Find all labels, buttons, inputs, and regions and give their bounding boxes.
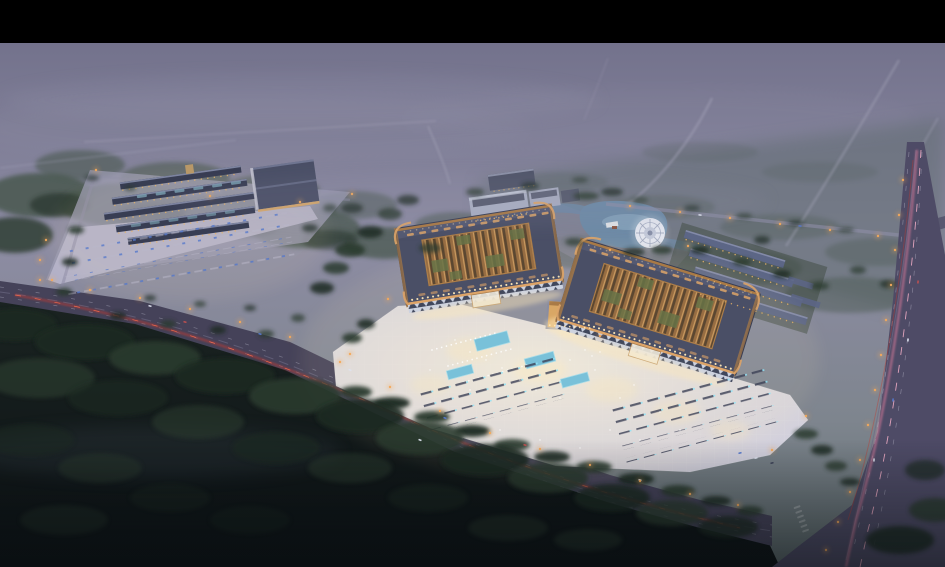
tree-canopy xyxy=(144,295,156,301)
street-light xyxy=(779,223,781,225)
fog-wisp xyxy=(170,172,770,228)
street-light xyxy=(599,335,601,337)
street-light xyxy=(687,245,689,247)
tree-canopy xyxy=(623,248,645,256)
street-light xyxy=(339,361,341,363)
tree-canopy xyxy=(85,175,99,181)
tree-canopy xyxy=(357,226,383,238)
car xyxy=(917,280,919,283)
pedestrian-dot xyxy=(454,339,455,340)
pedestrian-dot xyxy=(569,359,570,360)
tree-canopy xyxy=(244,305,256,311)
tree-canopy xyxy=(160,320,176,328)
tree-canopy xyxy=(310,282,334,294)
fog-wisp xyxy=(0,74,600,126)
tree-canopy xyxy=(210,326,226,334)
tree-canopy xyxy=(342,333,362,343)
street-light xyxy=(439,410,441,412)
pedestrian-dot xyxy=(429,369,430,370)
tree-canopy xyxy=(811,282,829,290)
tree-canopy xyxy=(736,213,752,219)
fountain-hub xyxy=(648,231,653,236)
street-light xyxy=(729,217,731,219)
street-light xyxy=(139,297,141,299)
pedestrian-dot xyxy=(609,429,610,430)
street-light xyxy=(489,432,491,434)
street-light xyxy=(189,308,191,310)
pedestrian-dot xyxy=(469,389,470,390)
tree-canopy xyxy=(194,301,206,307)
tree-canopy xyxy=(850,266,866,274)
pedestrian-dot xyxy=(485,359,486,360)
rendering-canvas xyxy=(0,0,945,567)
street-light xyxy=(805,415,807,417)
tree-canopy xyxy=(152,405,244,439)
car xyxy=(892,398,894,401)
tree-canopy xyxy=(838,227,854,233)
street-light xyxy=(89,289,91,291)
tree-canopy xyxy=(357,319,375,329)
pedestrian-dot xyxy=(535,389,536,390)
tree-canopy xyxy=(773,270,791,278)
tree-canopy xyxy=(68,226,84,234)
tree-canopy xyxy=(62,258,78,266)
street-light xyxy=(289,336,291,338)
street-light xyxy=(890,284,892,286)
pedestrian-dot xyxy=(633,384,634,385)
tree-canopy xyxy=(110,312,126,320)
letterbox-bar xyxy=(0,0,945,43)
street-light xyxy=(877,235,879,237)
street-light xyxy=(239,321,241,323)
pedestrian-dot xyxy=(519,379,520,380)
car xyxy=(798,225,801,227)
tree-canopy xyxy=(691,246,709,254)
street-light xyxy=(95,169,97,171)
tree-canopy xyxy=(68,380,168,416)
tree-canopy xyxy=(651,246,673,254)
street-light xyxy=(51,279,53,281)
pedestrian-dot xyxy=(659,411,660,412)
pedestrian-dot xyxy=(501,367,502,368)
street-light xyxy=(874,389,876,391)
tree-canopy xyxy=(762,162,878,182)
street-light xyxy=(387,298,389,300)
tree-canopy xyxy=(124,185,136,191)
tree-canopy xyxy=(419,243,441,253)
car xyxy=(907,338,909,341)
street-light xyxy=(39,279,41,281)
tree-canopy xyxy=(754,236,770,244)
tree-canopy xyxy=(733,258,751,266)
pedestrian-dot xyxy=(499,429,500,430)
street-light xyxy=(898,214,900,216)
tree-canopy xyxy=(340,386,372,398)
pedestrian-dot xyxy=(584,349,585,350)
street-light xyxy=(894,249,896,251)
tree-canopy xyxy=(788,220,804,226)
tree-canopy xyxy=(642,142,758,162)
pedestrian-dot xyxy=(591,355,592,356)
pedestrian-dot xyxy=(599,351,600,352)
tree-canopy xyxy=(302,224,318,232)
pedestrian-dot xyxy=(559,397,560,398)
bottom-vignette xyxy=(0,440,945,567)
street-light xyxy=(39,259,41,261)
street-light xyxy=(902,179,904,181)
tree-canopy xyxy=(565,238,583,246)
street-light xyxy=(885,319,887,321)
street-light xyxy=(349,353,351,355)
pedestrian-dot xyxy=(469,351,470,352)
street-light xyxy=(829,229,831,231)
street-light xyxy=(45,239,47,241)
street-light xyxy=(609,249,611,251)
tree-canopy xyxy=(56,288,72,296)
architectural-aerial-rendering: Aerial dusk architectural rendering of a… xyxy=(0,0,945,567)
tree-canopy xyxy=(335,243,365,257)
street-light xyxy=(867,424,869,426)
pedestrian-dot xyxy=(679,429,680,430)
pond-pavilion xyxy=(612,226,617,229)
pedestrian-dot xyxy=(594,369,595,370)
pedestrian-dot xyxy=(619,397,620,398)
street-light xyxy=(389,386,391,388)
tree-canopy xyxy=(291,314,305,322)
tree-canopy xyxy=(794,429,818,439)
street-light xyxy=(880,354,882,356)
tree-canopy xyxy=(323,262,349,274)
market-tower xyxy=(185,164,194,174)
